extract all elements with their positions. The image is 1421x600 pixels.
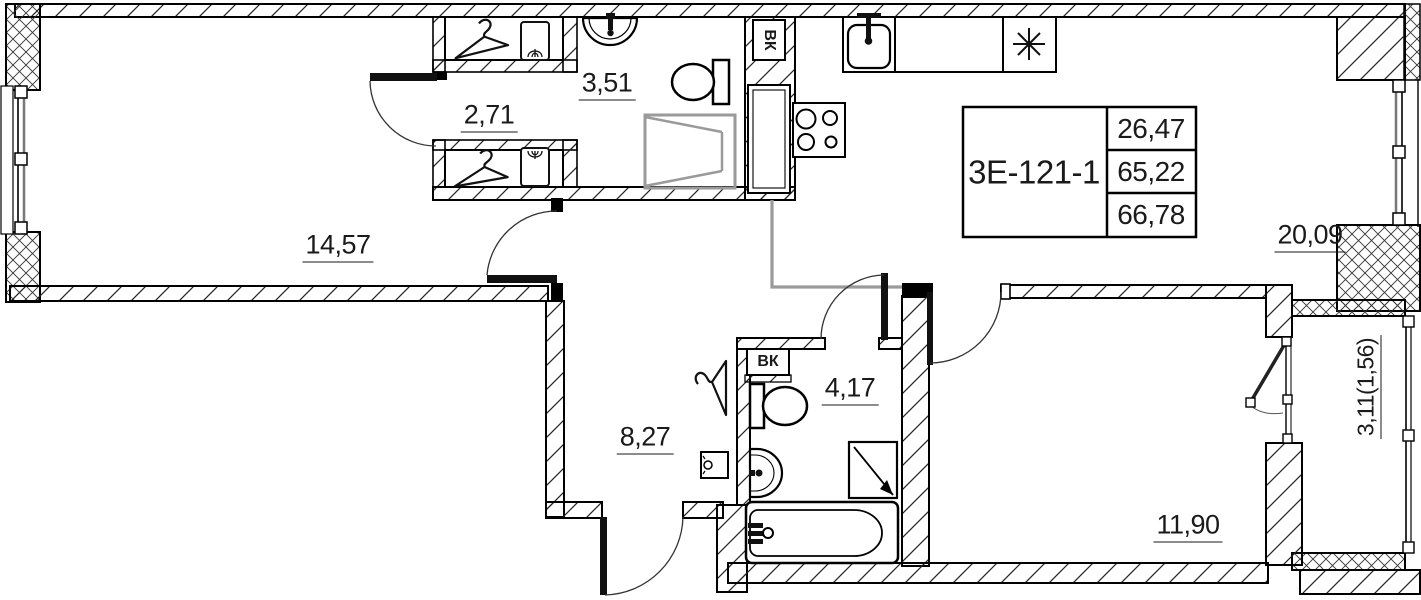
kitchen-counter: [895, 17, 1003, 72]
wardrobe-door: [370, 72, 447, 146]
cabinet-icon: [701, 452, 728, 478]
shelf-icon: [521, 148, 549, 186]
balcony-door: [1246, 337, 1292, 443]
room-label-wardrobe: 2,71: [461, 102, 518, 133]
shaft-label-bottom: ВК: [757, 354, 778, 370]
fridge-icon: [1003, 17, 1056, 72]
bathtub-icon: [746, 502, 898, 563]
entrance-door: [600, 517, 683, 595]
shaft-label-top: ВК: [761, 29, 777, 50]
room-label-hall: 14,57: [302, 232, 373, 263]
toilet-icon: [672, 60, 729, 104]
room-label-kitchen-living: 20,09: [1274, 222, 1345, 253]
window-right: [1393, 80, 1418, 227]
room-label-corridor: 8,27: [617, 424, 674, 455]
shelf-icon: [521, 22, 549, 60]
window-left: [1, 86, 27, 234]
balcony-glazing: [1403, 316, 1414, 553]
bathroom-door: [821, 273, 888, 340]
kitchen-sink-icon: [843, 13, 895, 72]
stove-icon: [793, 103, 845, 157]
floor-plan: 14,57 2,71 3,51 20,09 8,27 4,17 11,90 3,…: [0, 0, 1421, 600]
toilet-icon: [750, 384, 807, 428]
room-label-bedroom: 11,90: [1153, 512, 1222, 543]
bedroom-door: [927, 292, 1001, 365]
room-label-bathroom-top: 3,51: [579, 70, 636, 101]
sink-icon: [583, 13, 637, 45]
apartment-value-0: 26,47: [1117, 115, 1185, 143]
apartment-value-1: 65,22: [1117, 158, 1185, 186]
apartment-code: 3Е-121-1: [968, 156, 1100, 189]
duct-outline: [645, 115, 735, 188]
exterior-walls: [6, 4, 1420, 311]
washbasin-icon: [749, 449, 782, 497]
hanger-icon: [696, 361, 726, 415]
kitchen-zone-line: [772, 200, 910, 287]
room-label-balcony: 3,11(1,56): [1355, 335, 1382, 439]
room-label-bathroom: 4,17: [822, 375, 879, 406]
shower-icon: [849, 442, 897, 498]
apartment-value-2: 66,78: [1117, 201, 1185, 229]
